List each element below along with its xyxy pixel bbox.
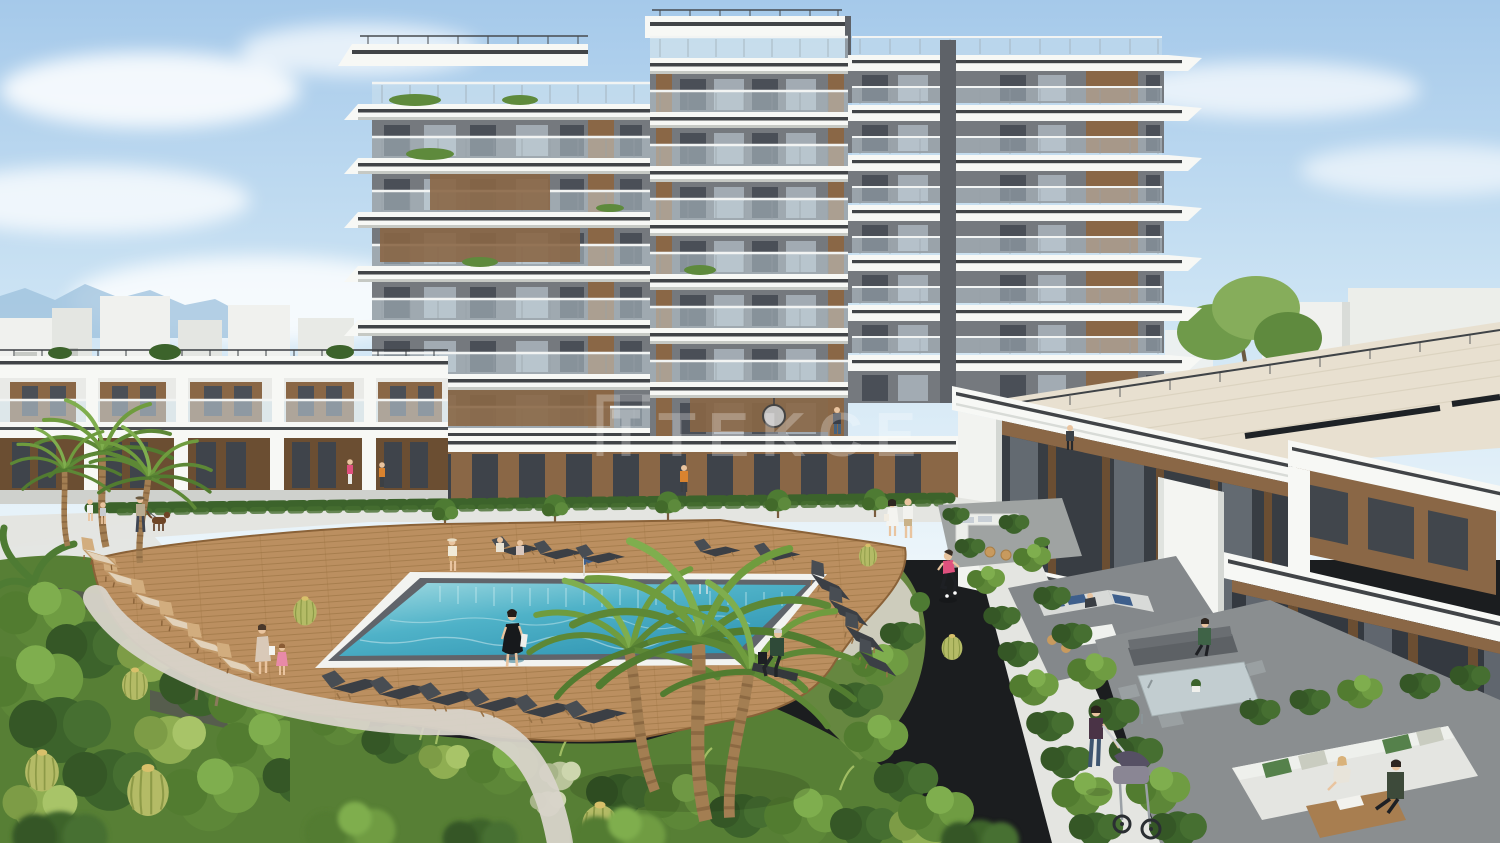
watermark-text: TEKCE (658, 401, 928, 470)
render-canvas: TEKCE (0, 0, 1500, 843)
architectural-render: TEKCE (0, 0, 1500, 843)
barrel-cactus (942, 634, 963, 660)
tower-roof-slab-left (338, 44, 588, 66)
tower-roof-slab-right (645, 16, 851, 38)
